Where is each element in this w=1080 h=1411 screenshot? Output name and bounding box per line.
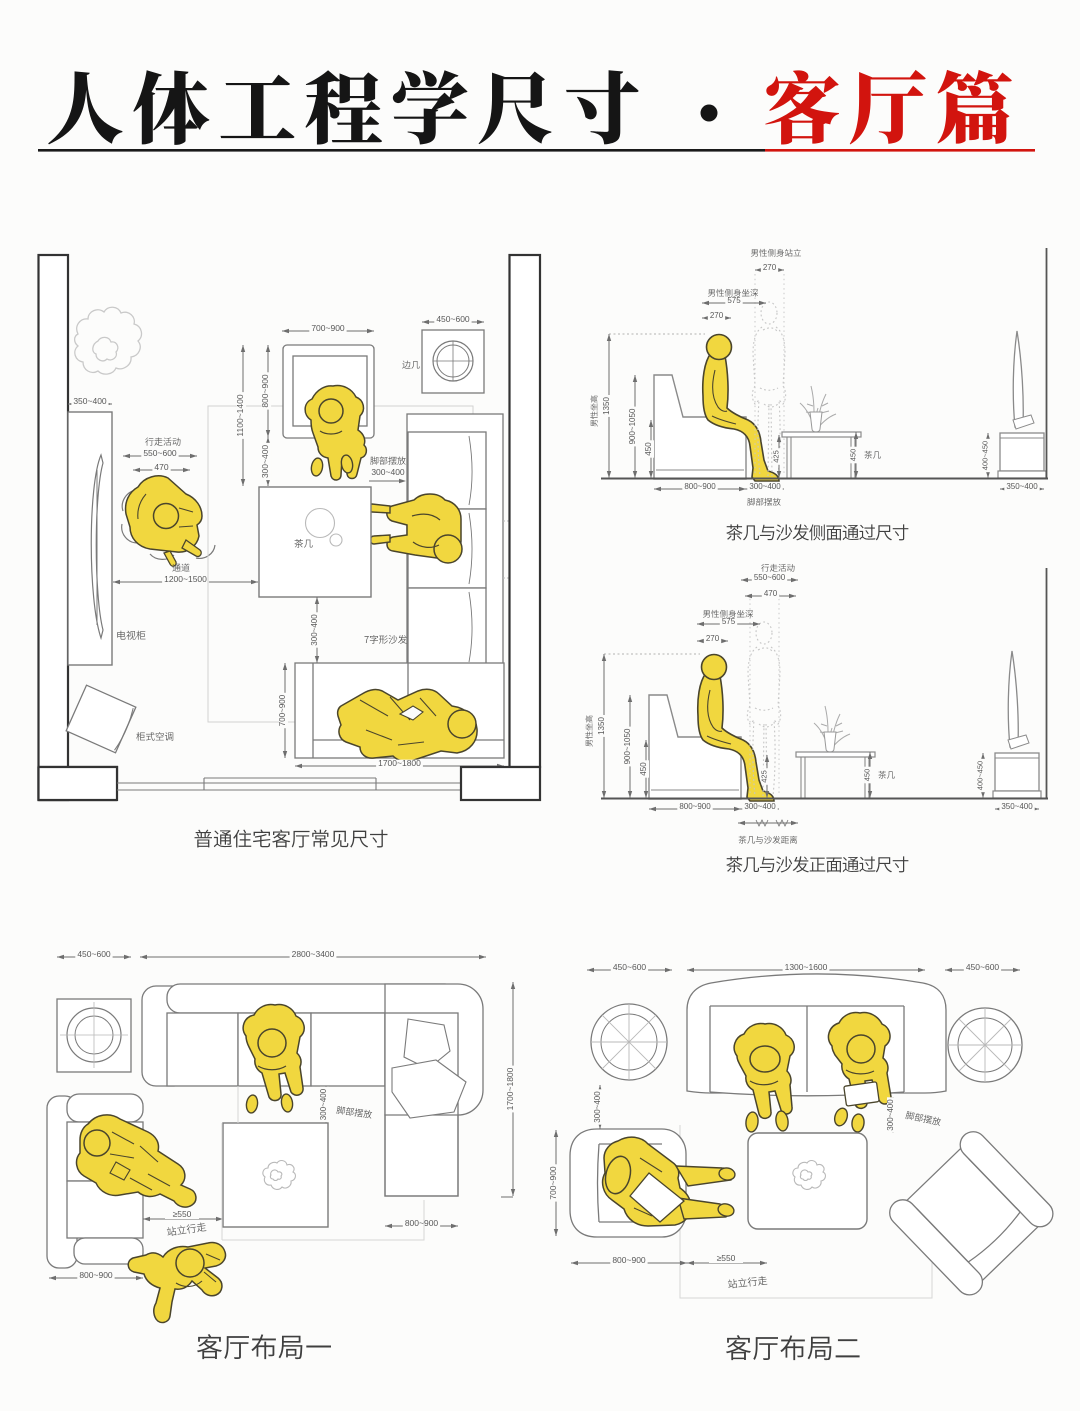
svg-text:≥550: ≥550 bbox=[173, 1209, 192, 1219]
svg-text:300~400: 300~400 bbox=[593, 1091, 602, 1123]
svg-text:800~900: 800~900 bbox=[684, 482, 716, 491]
svg-text:270: 270 bbox=[763, 263, 777, 272]
svg-text:350~400: 350~400 bbox=[1001, 802, 1033, 811]
svg-text:800~900: 800~900 bbox=[79, 1270, 113, 1280]
svg-text:1300~1600: 1300~1600 bbox=[785, 962, 828, 972]
svg-text:450: 450 bbox=[644, 442, 653, 456]
svg-text:700~900: 700~900 bbox=[278, 694, 287, 726]
svg-text:700~900: 700~900 bbox=[548, 1166, 558, 1200]
svg-text:350~400: 350~400 bbox=[73, 396, 107, 406]
svg-text:300~400: 300~400 bbox=[319, 1088, 328, 1120]
svg-text:425: 425 bbox=[772, 450, 781, 463]
svg-text:550~600: 550~600 bbox=[754, 573, 786, 582]
svg-text:450~600: 450~600 bbox=[966, 962, 1000, 972]
svg-text:550~600: 550~600 bbox=[143, 448, 177, 458]
svg-text:1700~1800: 1700~1800 bbox=[378, 758, 421, 768]
svg-text:450~600: 450~600 bbox=[77, 949, 111, 959]
svg-text:450: 450 bbox=[849, 449, 858, 462]
svg-text:300~400: 300~400 bbox=[371, 467, 405, 477]
svg-text:575: 575 bbox=[722, 617, 736, 626]
svg-text:300~400: 300~400 bbox=[744, 802, 776, 811]
svg-text:350~400: 350~400 bbox=[1006, 482, 1038, 491]
svg-text:2800~3400: 2800~3400 bbox=[292, 949, 335, 959]
svg-text:900~1050: 900~1050 bbox=[628, 408, 637, 444]
svg-text:425: 425 bbox=[760, 770, 769, 783]
svg-text:1350: 1350 bbox=[602, 397, 611, 415]
svg-text:1350: 1350 bbox=[597, 717, 606, 735]
svg-text:450: 450 bbox=[863, 769, 872, 782]
svg-text:1100~1400: 1100~1400 bbox=[235, 394, 245, 436]
svg-text:300~400: 300~400 bbox=[886, 1099, 895, 1131]
svg-text:800~900: 800~900 bbox=[612, 1255, 646, 1265]
svg-text:800~900: 800~900 bbox=[260, 374, 270, 408]
svg-text:700~900: 700~900 bbox=[311, 323, 345, 333]
svg-text:800~900: 800~900 bbox=[679, 802, 711, 811]
svg-text:400~450: 400~450 bbox=[981, 441, 990, 470]
svg-text:300~400: 300~400 bbox=[310, 614, 319, 646]
svg-text:450~600: 450~600 bbox=[613, 962, 647, 972]
svg-text:470: 470 bbox=[154, 462, 168, 472]
svg-text:1700~1800: 1700~1800 bbox=[505, 1067, 515, 1110]
svg-text:575: 575 bbox=[727, 296, 741, 305]
svg-text:400~450: 400~450 bbox=[976, 761, 985, 790]
svg-text:450: 450 bbox=[639, 762, 648, 776]
svg-text:270: 270 bbox=[710, 311, 724, 320]
svg-text:450~600: 450~600 bbox=[436, 314, 470, 324]
svg-text:900~1050: 900~1050 bbox=[623, 728, 632, 764]
svg-text:470: 470 bbox=[764, 589, 778, 598]
svg-text:800~900: 800~900 bbox=[405, 1218, 439, 1228]
svg-text:300~400: 300~400 bbox=[260, 445, 270, 479]
svg-text:1200~1500: 1200~1500 bbox=[164, 574, 207, 584]
svg-text:270: 270 bbox=[706, 634, 720, 643]
svg-text:300~400: 300~400 bbox=[749, 482, 781, 491]
svg-text:≥550: ≥550 bbox=[717, 1253, 736, 1263]
